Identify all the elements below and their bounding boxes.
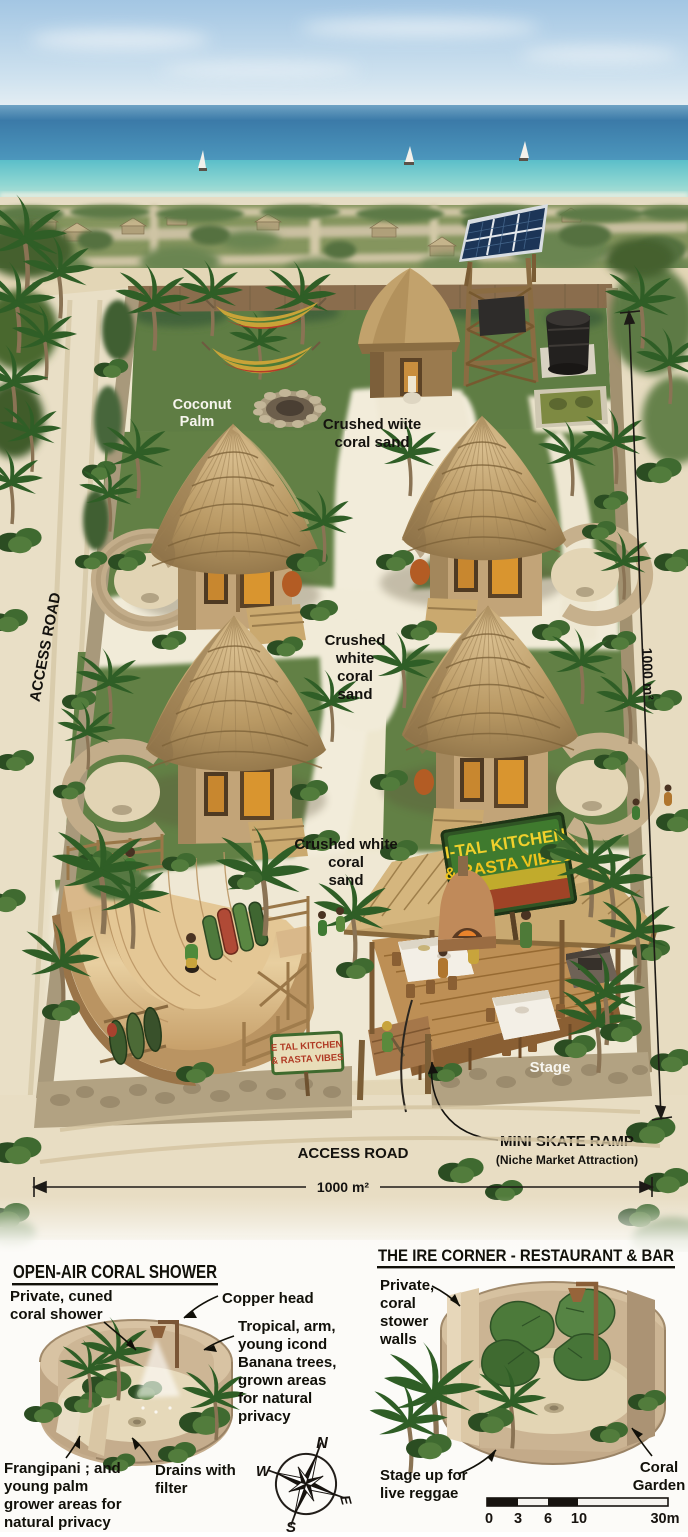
svg-text:10: 10 — [571, 1511, 587, 1527]
svg-text:grower areas for: grower areas for — [4, 1496, 122, 1513]
svg-text:Drains with: Drains with — [155, 1462, 236, 1479]
svg-text:Crushed: Crushed — [325, 632, 386, 649]
svg-text:N: N — [316, 1435, 328, 1452]
svg-text:ACCESS ROAD: ACCESS ROAD — [298, 1145, 409, 1162]
svg-text:young palm: young palm — [4, 1478, 88, 1495]
svg-text:W: W — [256, 1463, 272, 1480]
svg-text:walls: walls — [379, 1331, 417, 1348]
svg-text:1000 m²: 1000 m² — [317, 1179, 369, 1195]
svg-text:Crushed white: Crushed white — [294, 836, 397, 853]
svg-text:Stage up for: Stage up for — [380, 1467, 468, 1484]
svg-text:white: white — [335, 650, 374, 667]
svg-text:Tropical, arm,: Tropical, arm, — [238, 1318, 336, 1335]
svg-text:coral: coral — [328, 854, 364, 871]
svg-text:Crushed wiite: Crushed wiite — [323, 416, 421, 433]
svg-text:sand: sand — [328, 872, 363, 889]
svg-text:coral shower: coral shower — [10, 1306, 103, 1323]
svg-text:THE IRE CORNER - RESTAURANT &: THE IRE CORNER - RESTAURANT & BAR — [378, 1246, 674, 1265]
svg-text:privacy: privacy — [238, 1408, 291, 1425]
svg-text:stower: stower — [380, 1313, 429, 1330]
svg-text:grown areas: grown areas — [238, 1372, 326, 1389]
svg-text:Palm: Palm — [180, 414, 215, 430]
svg-text:Garden: Garden — [633, 1477, 686, 1494]
svg-text:filter: filter — [155, 1480, 188, 1497]
svg-text:Coral: Coral — [640, 1459, 678, 1476]
svg-text:Private,: Private, — [380, 1277, 434, 1294]
svg-text:6: 6 — [544, 1511, 552, 1527]
svg-text:(Niche Market Attraction): (Niche Market Attraction) — [496, 1153, 638, 1167]
svg-text:Private, cuned: Private, cuned — [10, 1288, 113, 1305]
svg-text:sand: sand — [337, 686, 372, 703]
svg-text:for natural: for natural — [238, 1390, 312, 1407]
svg-text:Coconut: Coconut — [173, 397, 232, 413]
svg-text:0: 0 — [485, 1511, 493, 1527]
svg-text:30m: 30m — [650, 1511, 679, 1527]
svg-text:3: 3 — [514, 1511, 522, 1527]
svg-text:coral: coral — [337, 668, 373, 685]
svg-text:1000 m²: 1000 m² — [639, 647, 657, 700]
svg-text:S: S — [286, 1519, 296, 1532]
svg-text:young icond: young icond — [238, 1336, 327, 1353]
svg-text:Copper head: Copper head — [222, 1290, 314, 1307]
svg-text:Stage: Stage — [530, 1059, 571, 1076]
svg-text:Frangipani ; and: Frangipani ; and — [4, 1460, 121, 1477]
svg-text:OPEN-AIR CORAL SHOWER: OPEN-AIR CORAL SHOWER — [13, 1262, 217, 1282]
svg-text:coral: coral — [380, 1295, 416, 1312]
svg-text:natural privacy: natural privacy — [4, 1514, 111, 1531]
svg-text:Banana trees,: Banana trees, — [238, 1354, 336, 1371]
svg-text:live reggae: live reggae — [380, 1485, 458, 1502]
svg-text:coral sand: coral sand — [334, 434, 409, 451]
